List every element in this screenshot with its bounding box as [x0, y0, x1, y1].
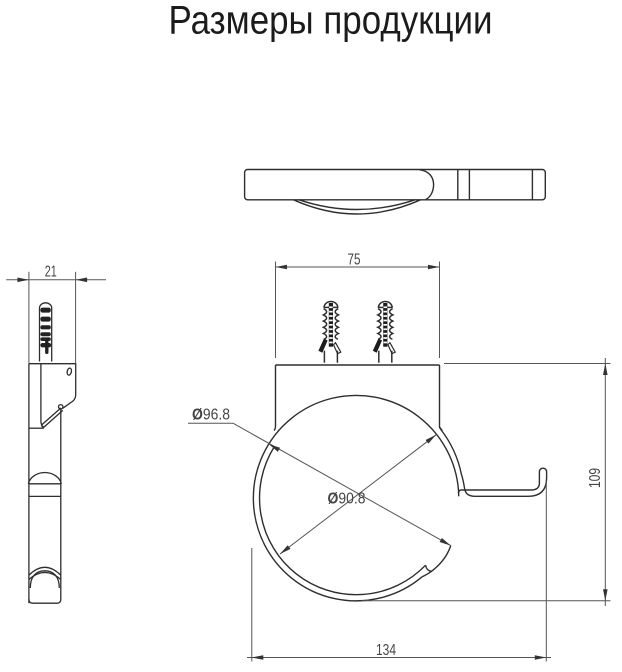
svg-text:134: 134 — [376, 642, 396, 659]
svg-text:75: 75 — [348, 252, 361, 269]
svg-text:109: 109 — [587, 468, 604, 488]
svg-text:21: 21 — [45, 263, 57, 280]
svg-text:Ø96.8: Ø96.8 — [192, 407, 230, 424]
svg-text:Размеры продукции: Размеры продукции — [169, 0, 493, 43]
svg-text:Ø90.8: Ø90.8 — [328, 491, 366, 508]
